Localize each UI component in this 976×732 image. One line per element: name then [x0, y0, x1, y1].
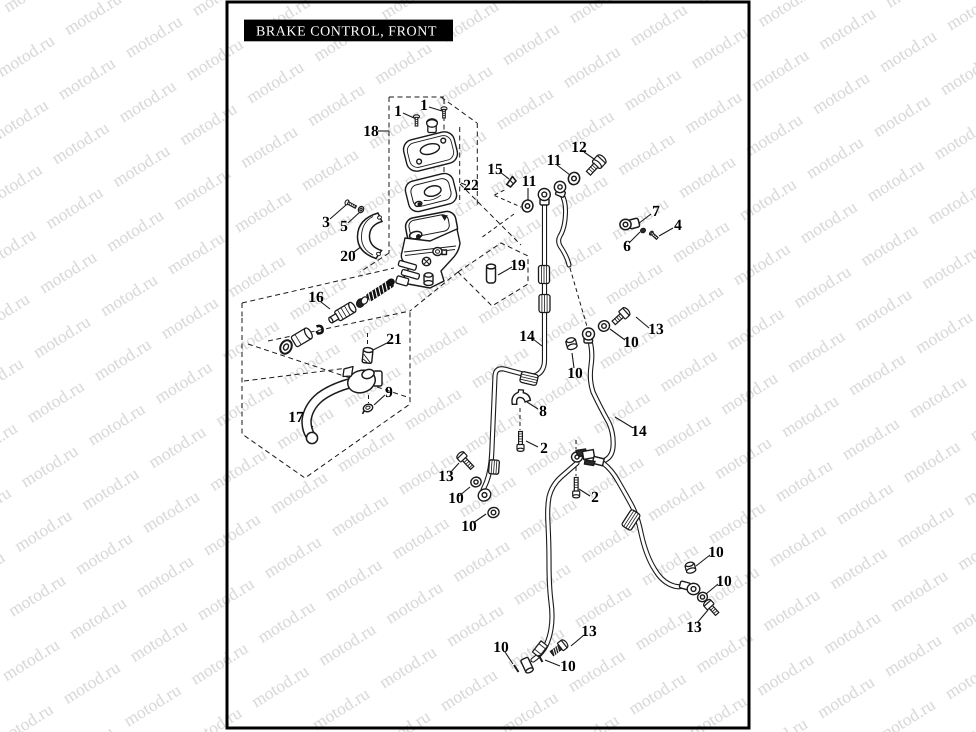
- svg-text:21: 21: [386, 331, 402, 348]
- svg-text:2: 2: [540, 440, 548, 457]
- svg-text:10: 10: [493, 639, 509, 656]
- svg-text:4: 4: [674, 217, 682, 234]
- svg-text:16: 16: [308, 289, 324, 306]
- svg-text:10: 10: [448, 490, 464, 507]
- svg-text:13: 13: [581, 623, 597, 640]
- svg-text:BRAKE CONTROL, FRONT: BRAKE CONTROL, FRONT: [256, 24, 437, 39]
- svg-text:10: 10: [716, 573, 732, 590]
- svg-text:6: 6: [623, 238, 631, 255]
- svg-text:15: 15: [487, 161, 503, 178]
- svg-text:14: 14: [519, 328, 535, 345]
- svg-text:3: 3: [322, 214, 330, 231]
- svg-text:7: 7: [652, 203, 660, 220]
- svg-text:12: 12: [571, 139, 587, 156]
- svg-text:9: 9: [385, 384, 393, 401]
- svg-text:8: 8: [539, 403, 547, 420]
- svg-text:1: 1: [394, 103, 402, 120]
- svg-text:22: 22: [463, 177, 479, 194]
- svg-text:20: 20: [340, 248, 356, 265]
- svg-text:10: 10: [623, 334, 639, 351]
- svg-text:19: 19: [510, 257, 526, 274]
- svg-text:5: 5: [340, 218, 348, 235]
- svg-text:18: 18: [363, 123, 379, 140]
- svg-text:10: 10: [708, 544, 724, 561]
- svg-text:13: 13: [648, 321, 664, 338]
- svg-text:1: 1: [420, 97, 428, 114]
- svg-text:13: 13: [686, 619, 702, 636]
- svg-text:10: 10: [567, 365, 583, 382]
- svg-text:11: 11: [522, 173, 537, 190]
- svg-text:14: 14: [631, 423, 647, 440]
- svg-text:2: 2: [591, 489, 599, 506]
- svg-text:10: 10: [461, 518, 477, 535]
- svg-text:10: 10: [560, 658, 576, 675]
